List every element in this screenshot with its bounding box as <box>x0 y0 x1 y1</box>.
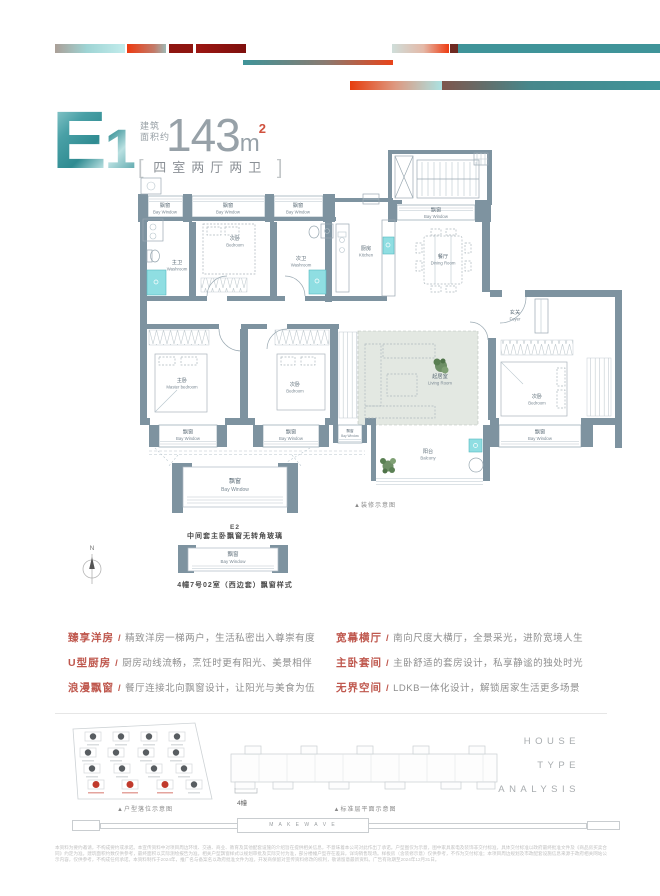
house-type-analysis: HOUSE TYPE ANALYSIS <box>470 730 580 802</box>
feature-item: U型厨房/厨房动线流畅，烹饪时更有阳光、美景相伴 <box>68 655 312 670</box>
compass: N <box>74 540 110 588</box>
label-bay-window-cn: 飘窗 <box>183 428 193 436</box>
feature-item: 臻享洋房/精致洋房一梯两户，生活私密出入尊崇有度 <box>68 630 315 645</box>
label-balcony-cn: 阳台 <box>423 447 433 455</box>
deco-bar <box>392 44 449 53</box>
label-bay-window-cn: 飘窗 <box>223 201 233 209</box>
label-bay-window-en: Bay Window <box>286 210 311 215</box>
area-superscript: 2 <box>259 121 265 136</box>
deco-bar <box>243 60 393 65</box>
compass-north-label: N <box>90 545 95 552</box>
bay-diagram1-label-cn: 飘窗 <box>229 477 241 485</box>
stair-core <box>395 153 488 198</box>
feature-item: 无界空间/LDKB一体化设计，解锁居家生活更多场景 <box>336 680 580 695</box>
bay-diagram2-label-cn: 飘窗 <box>227 550 239 558</box>
bay-detail-diagram-1: 飘窗 Bay Window <box>160 455 310 521</box>
label-master-bedroom-cn: 主卧 <box>177 376 187 384</box>
label-dining-en: Dining Room <box>431 261 456 266</box>
deco-bar <box>450 44 458 53</box>
label-master-washroom-cn: 主卫 <box>172 258 182 266</box>
label-second-washroom-en: Washroom <box>291 263 312 268</box>
label-bay-window-en: Bay Window <box>216 210 241 215</box>
label-living-en: Living Room <box>428 381 452 386</box>
label-bedroom-north-cn: 次卧 <box>230 234 240 242</box>
bay-detail-diagram-2: 飘窗 Bay Window <box>168 541 298 577</box>
brochure-page: E1 建筑面积约 143m2 [ 四室两厅两卫 ] <box>0 0 660 896</box>
label-bay-window-en: Bay Window <box>279 436 304 441</box>
deco-bar <box>55 44 125 53</box>
site-plan-caption: ▲户型落位示意图 <box>70 804 220 813</box>
deco-bar <box>196 44 246 53</box>
deco-bar <box>127 44 166 53</box>
label-master-bedroom-en: Master bedroom <box>166 385 198 390</box>
label-bay-window-en: Bay Window <box>153 210 178 215</box>
label-living-cn: 起居室 <box>432 372 448 380</box>
label-bay-window-en: Bay Window <box>424 214 449 219</box>
make-wave-label: M A K E W A V E <box>237 818 369 833</box>
deco-bar <box>350 81 442 90</box>
label-dining-cn: 餐厅 <box>438 252 448 260</box>
label-kitchen-en: Kitchen <box>359 253 374 258</box>
bay-diagram2-caption: 4幢7号02室（西边套）飘窗样式 <box>140 581 330 590</box>
label-bedroom-mid-cn: 次卧 <box>290 380 300 388</box>
decoration-note: ▲装修示意图 <box>330 500 420 509</box>
deco-bar <box>458 44 660 53</box>
label-foyer-cn: 玄关 <box>510 308 520 316</box>
label-bay-window-en: Bay Window <box>341 434 359 438</box>
label-kitchen-cn: 厨房 <box>361 244 371 252</box>
label-bedroom-mid-en: Bedroom <box>286 389 304 394</box>
standard-floor-diagram <box>225 740 510 796</box>
plan-code: E1 <box>52 100 136 182</box>
label-balcony-en: Balcony <box>420 456 436 461</box>
plan-code-main: E <box>52 95 105 186</box>
label-bay-window-en: Bay Window <box>176 436 201 441</box>
disclaimer: 本资料为要约邀请，不构成要约或承诺。本宣传资料中对项目周边环境、交通、商业、教育… <box>55 845 607 862</box>
label-bedroom-right-cn: 次卧 <box>532 392 542 400</box>
label-foyer-en: Foyer <box>510 317 522 322</box>
deco-bar <box>442 81 660 90</box>
site-plan <box>68 720 220 804</box>
make-wave-right-box <box>587 821 620 830</box>
building-tag: 4幢 <box>222 797 262 807</box>
label-bay-window-cn: 飘窗 <box>293 201 303 209</box>
deco-bar <box>169 44 193 53</box>
section-divider <box>55 713 607 714</box>
label-bay-window-en: Bay Window <box>528 436 553 441</box>
label-bedroom-north-en: Bedroom <box>226 243 244 248</box>
label-bay-window-cn: 飘窗 <box>286 428 296 436</box>
compass-needle-icon <box>89 557 95 569</box>
feature-item: 浪漫飘窗/餐厅连接北向飘窗设计，让阳光与美食为伍 <box>68 680 315 695</box>
floor-plan-caption: ▲标准层平面示意图 <box>285 804 445 813</box>
floor-plan: 飘窗 Bay Window 飘窗 Bay Window 飘窗 Bay Windo… <box>125 148 625 498</box>
bay-diagram2-label-en: Bay Window <box>220 559 246 564</box>
label-master-washroom-en: Washroom <box>167 267 188 272</box>
label-bay-window-cn: 飘窗 <box>535 428 545 436</box>
bay-diagram1-caption: E2 中间套主卧飘窗无转角玻璃 <box>140 523 330 541</box>
living-room-floor <box>358 331 478 425</box>
label-bay-window-cn: 飘窗 <box>431 206 441 214</box>
label-bedroom-right-en: Bedroom <box>528 401 546 406</box>
feature-item: 主卧套间/主卧舒适的套房设计，私享静谧的独处时光 <box>336 655 583 670</box>
label-second-washroom-cn: 次卫 <box>296 254 306 262</box>
label-bay-window-cn: 飘窗 <box>346 428 354 433</box>
bay-diagram1-label-en: Bay Window <box>221 487 249 493</box>
feature-item: 宽幕横厅/南向尺度大横厅，全景采光，进阶宽境人生 <box>336 630 583 645</box>
make-wave-left-box <box>72 820 100 831</box>
label-bay-window-cn: 飘窗 <box>160 201 170 209</box>
